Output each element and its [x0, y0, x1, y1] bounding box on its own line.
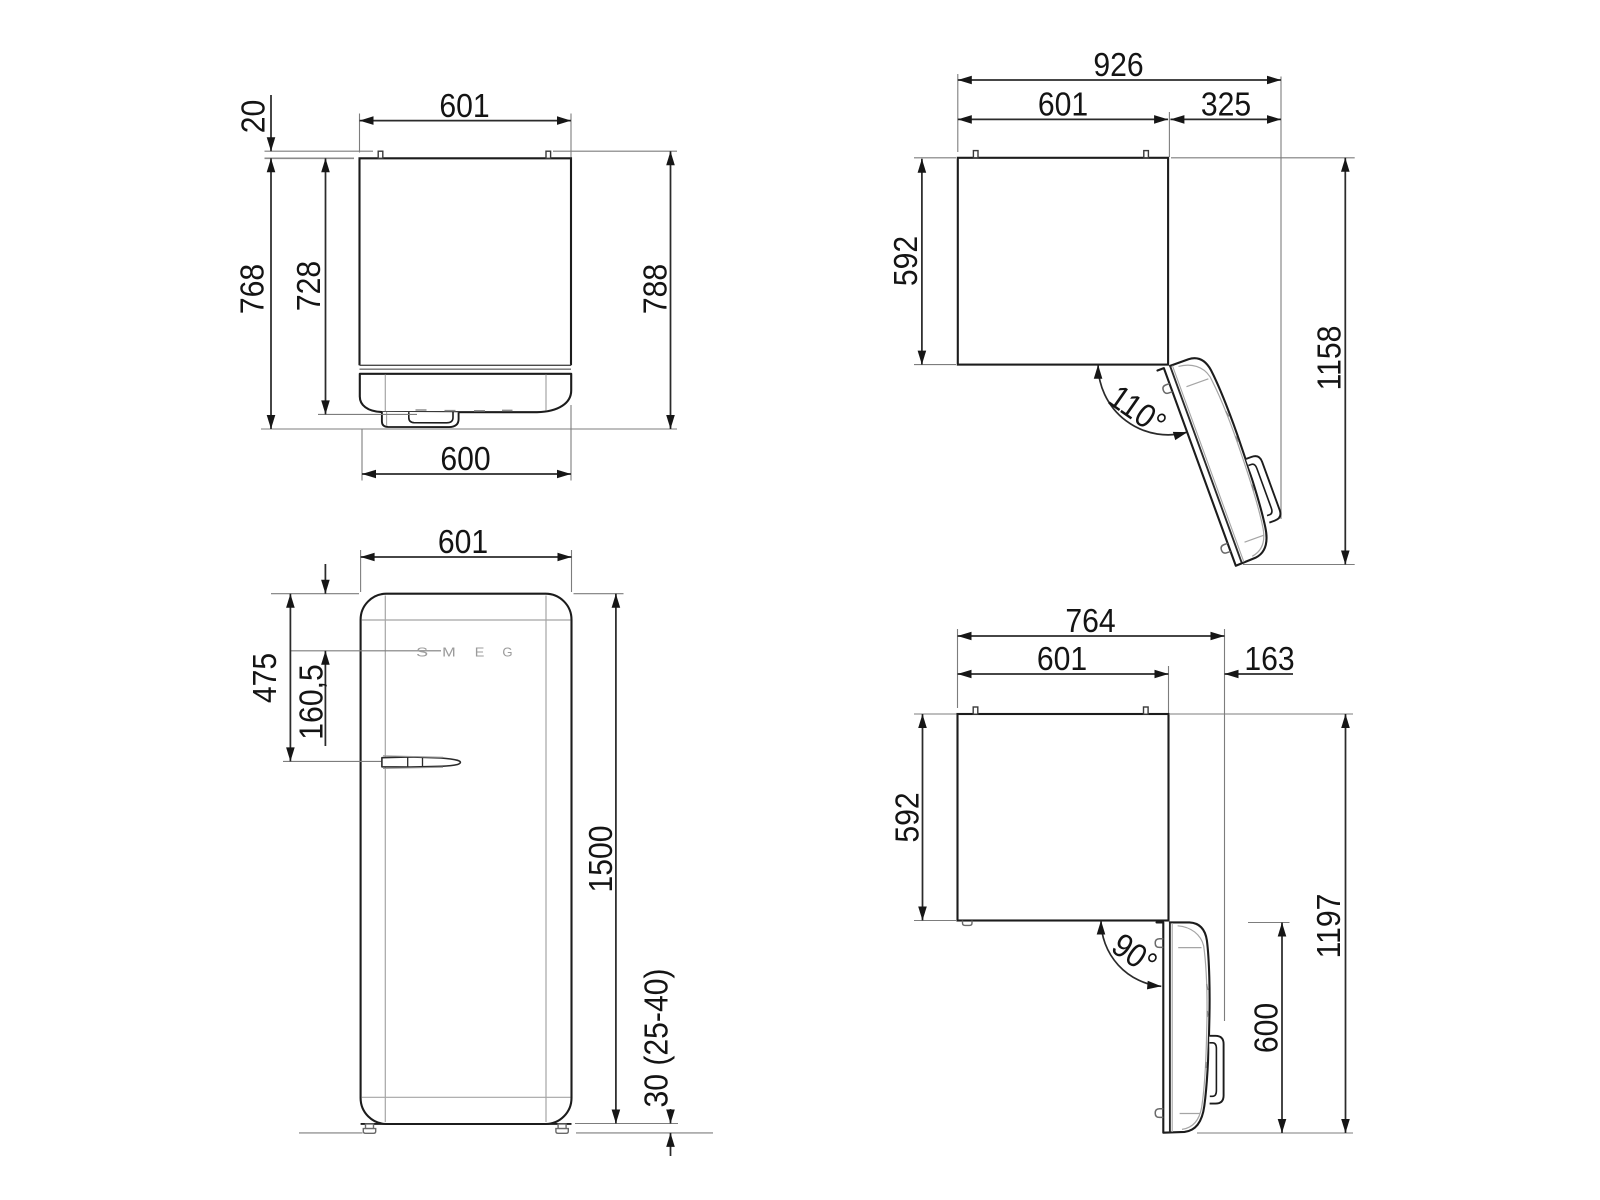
svg-text:764: 764 — [1065, 602, 1115, 640]
svg-text:601: 601 — [1037, 640, 1087, 678]
svg-text:160,5: 160,5 — [292, 664, 330, 739]
svg-text:30 (25-40): 30 (25-40) — [637, 968, 675, 1107]
svg-text:20: 20 — [234, 100, 272, 134]
svg-text:163: 163 — [1244, 640, 1294, 678]
svg-text:768: 768 — [233, 264, 271, 314]
svg-text:325: 325 — [1201, 85, 1251, 123]
svg-text:G: G — [502, 645, 512, 659]
svg-text:600: 600 — [1247, 1003, 1285, 1053]
svg-text:M: M — [442, 645, 456, 659]
svg-text:E: E — [475, 645, 485, 659]
svg-text:601: 601 — [439, 87, 489, 125]
svg-text:1158: 1158 — [1310, 326, 1348, 391]
svg-text:475: 475 — [246, 653, 284, 703]
svg-text:788: 788 — [636, 264, 674, 314]
svg-text:601: 601 — [438, 523, 488, 561]
svg-text:592: 592 — [888, 792, 926, 842]
svg-text:601: 601 — [1038, 85, 1088, 123]
svg-text:600: 600 — [440, 440, 490, 478]
svg-text:926: 926 — [1093, 46, 1143, 84]
svg-text:S: S — [416, 645, 428, 659]
svg-text:1197: 1197 — [1310, 894, 1348, 959]
svg-text:592: 592 — [887, 236, 925, 286]
svg-text:728: 728 — [290, 261, 328, 311]
svg-text:1500: 1500 — [582, 825, 620, 892]
